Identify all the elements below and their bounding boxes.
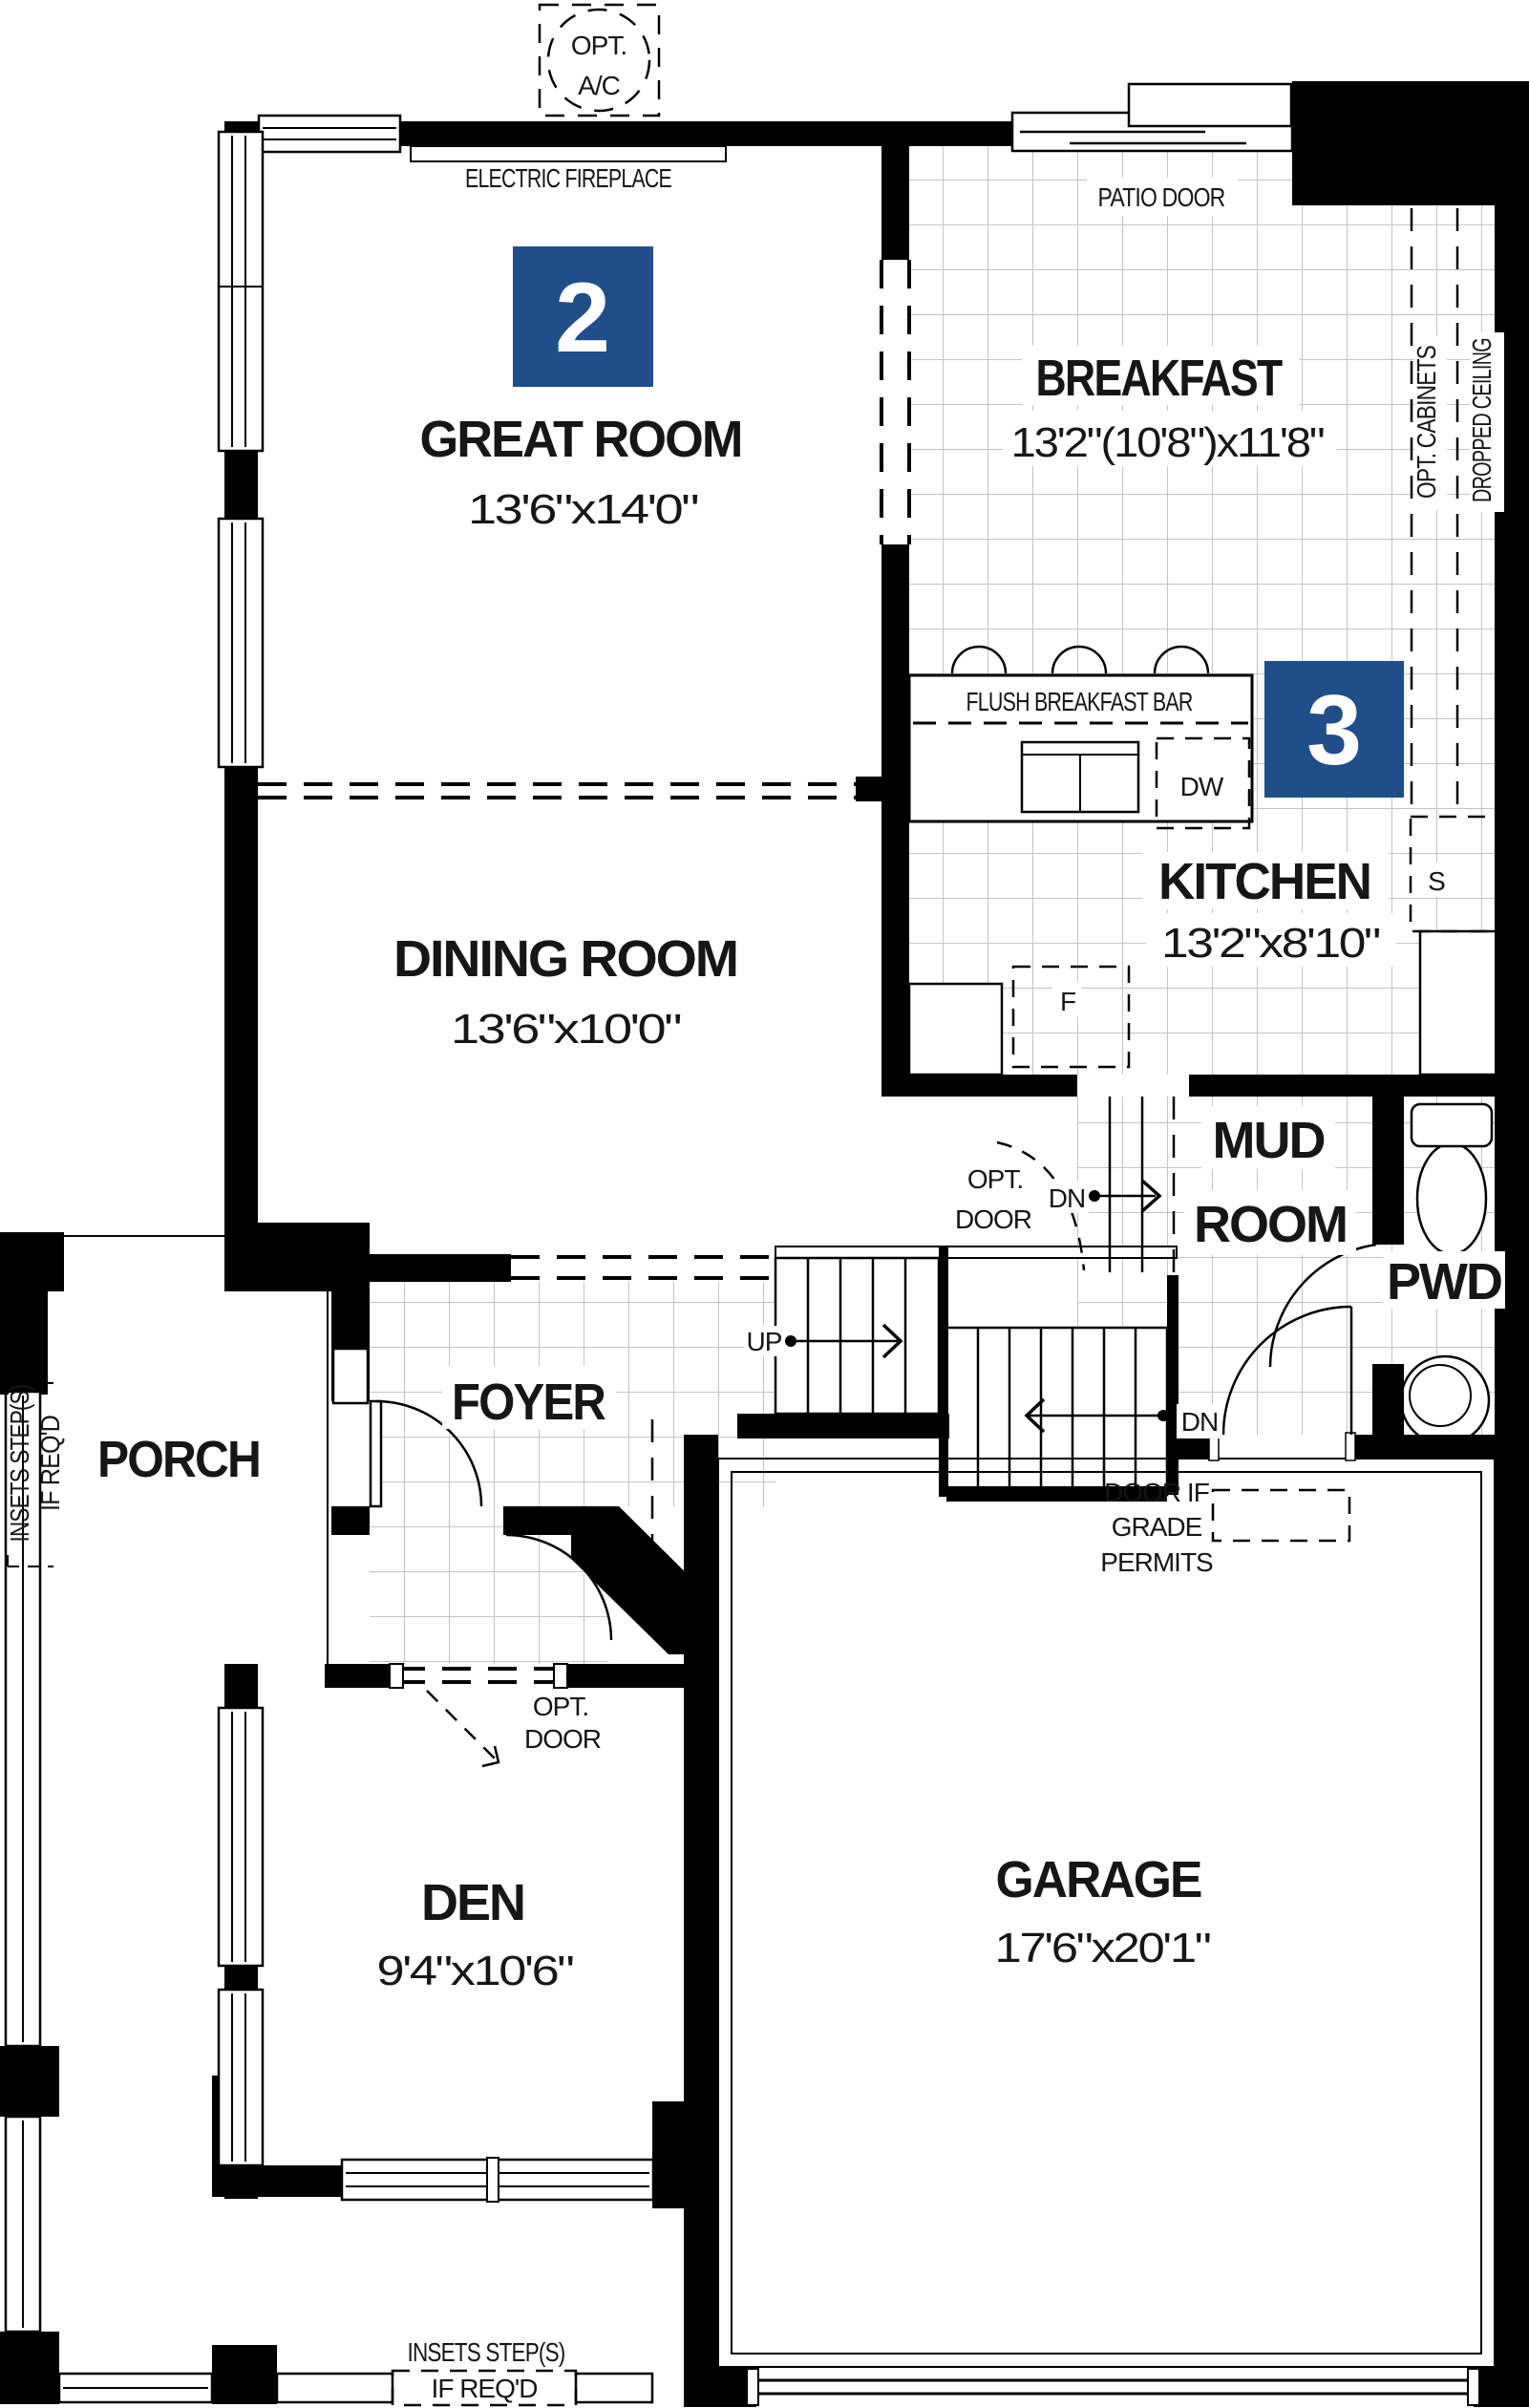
pwd-sink-icon [1401,1356,1489,1444]
dining-room-label: DINING ROOM [393,930,737,988]
door-if-grade-box [1213,1490,1349,1541]
flush-breakfast-bar-label: FLUSH BREAKFAST BAR [966,687,1193,716]
insets-note-left-1: INSETS STEP(S) [5,1385,34,1543]
pwd-label: PWD [1387,1253,1501,1311]
mud-room-label-1: MUD [1213,1112,1325,1169]
foyer-label: FOYER [452,1374,605,1431]
porch-label: PORCH [97,1431,260,1488]
dn-mudroom-label: DN [1049,1183,1085,1213]
insets-note-bottom-2: IF REQ'D [432,2374,538,2403]
electric-fireplace-label: ELECTRIC FIREPLACE [465,163,671,193]
opt-basement-door-label-2: DOOR [955,1204,1031,1234]
island-sink-icon [1022,742,1138,812]
den-opt-door-swing [427,1691,499,1766]
insets-note-bottom-1: INSETS STEP(S) [408,2337,565,2367]
kitchen-label: KITCHEN [1158,853,1370,910]
den-dims: 9'4"x10'6" [377,1948,573,1994]
fridge-label: F [1060,987,1075,1016]
patio-door-label: PATIO DOOR [1098,182,1225,212]
den-bottom-window [342,2158,653,2202]
dining-left-window [219,519,263,767]
floor-plan: OPT. A/C ELECTRIC FIREPLACE PATIO DOOR G… [0,0,1529,2408]
sink-label: S [1428,866,1445,896]
opt-basement-door-label-1: OPT. [967,1164,1023,1194]
dining-room-dims: 13'6"x10'0" [451,1006,680,1053]
badge-2-number: 2 [555,263,610,373]
dropped-ceiling-label: DROPPED CEILING [1467,338,1497,502]
patio-door-icon [1012,84,1292,151]
up-label: UP [747,1327,782,1356]
mud-room-label-2: ROOM [1194,1196,1347,1253]
garage-dims: 17'6"x20'1" [995,1925,1210,1971]
foyer-side-window [333,1349,368,1403]
den-opt-door-label-2: DOOR [524,1724,601,1754]
dishwasher-label: DW [1180,772,1224,801]
insets-note-left-2: IF REQ'D [35,1416,65,1511]
electric-fireplace-icon [411,146,726,161]
opt-ac-label-2: A/C [578,71,620,100]
great-room-left-window [219,132,263,451]
great-room-label: GREAT ROOM [420,411,742,468]
badge-3-number: 3 [1306,675,1362,786]
breakfast-dims: 13'2"(10'8")x11'8" [1011,419,1324,466]
toilet-icon [1412,1104,1492,1254]
garage-interior-outline [718,1459,1495,2367]
great-room-top-window [259,116,400,152]
dn-basement-label: DN [1181,1407,1218,1437]
door-if-grade-label-3: PERMITS [1100,1547,1213,1577]
opt-cabinets-label: OPT. CABINETS [1412,346,1441,499]
den-label: DEN [421,1874,524,1931]
garage-door [747,2369,1479,2405]
door-if-grade-label-2: GRADE [1112,1512,1202,1542]
den-opt-door-label-1: OPT. [533,1692,588,1721]
kitchen-dims: 13'2"x8'10" [1161,920,1379,967]
garage-label: GARAGE [996,1851,1201,1908]
opt-ac-label-1: OPT. [571,31,626,60]
great-room-dims: 13'6"x14'0" [468,486,697,533]
den-left-windows [219,1708,263,2165]
breakfast-label: BREAKFAST [1036,350,1284,407]
door-if-grade-label-1: DOOR IF [1104,1478,1209,1507]
